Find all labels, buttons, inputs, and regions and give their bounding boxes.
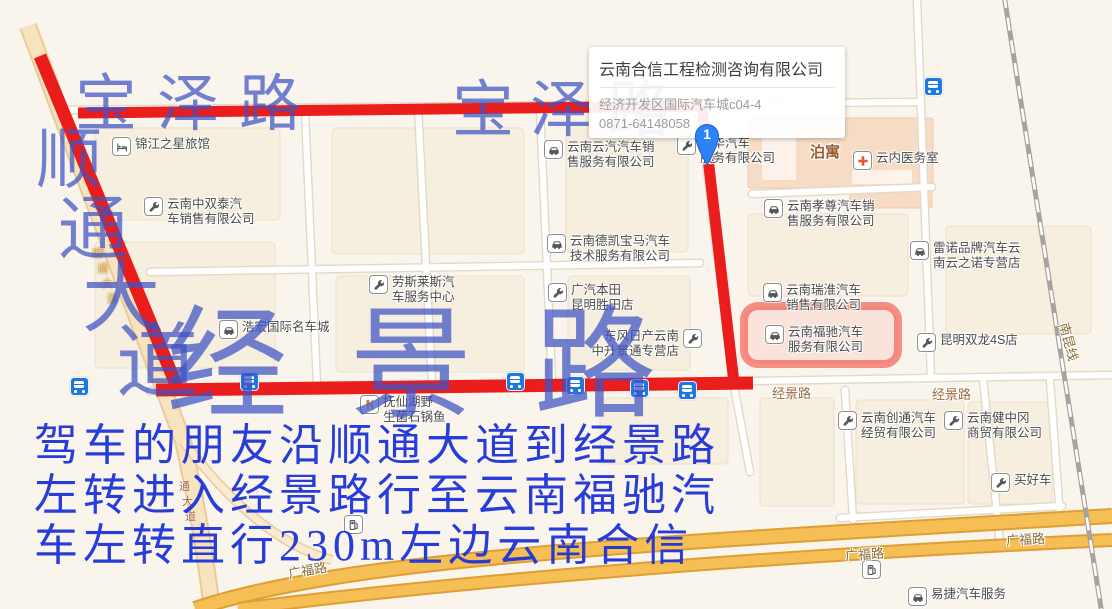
directions-text: 驾车的朋友沿顺通大道到经景路左转进入经景路行至云南福驰汽车左转直行230m左边云… xyxy=(0,0,1112,609)
map-canvas[interactable]: 锦江之星旅馆云南中双泰汽车销售有限公司云南云汽汽车销售服务有限公司经华汽车服务有… xyxy=(0,0,1112,609)
directions-line-2: 左转进入经景路行至云南福驰汽 xyxy=(34,474,720,518)
directions-line-1: 驾车的朋友沿顺通大道到经景路 xyxy=(34,424,720,468)
directions-line-3: 车左转直行230m左边云南合信 xyxy=(34,524,693,568)
